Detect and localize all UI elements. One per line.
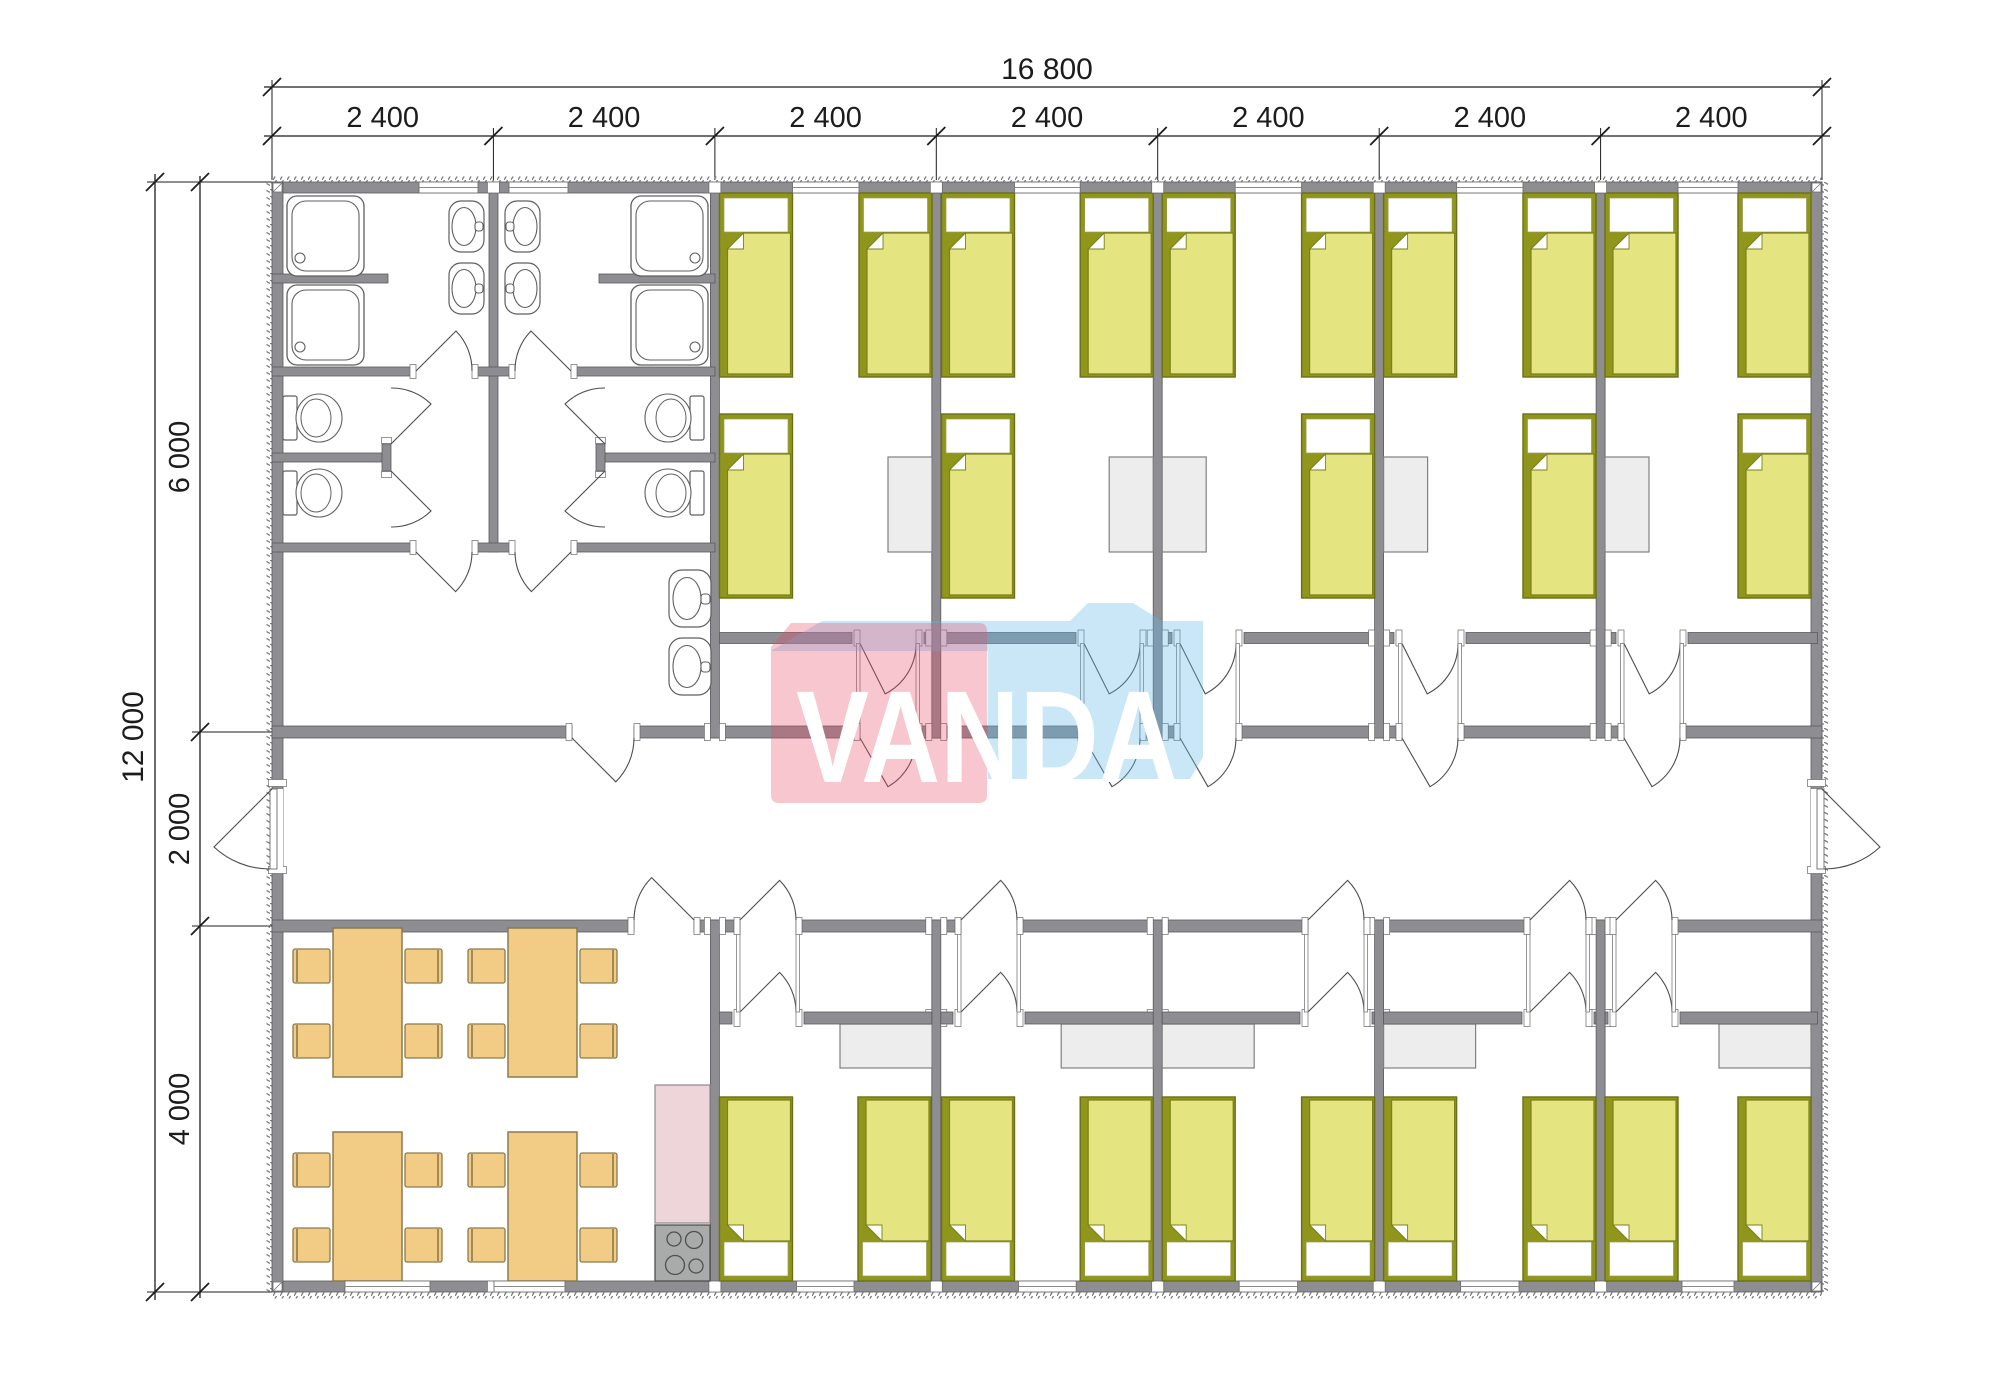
svg-text:12 000: 12 000 bbox=[117, 691, 150, 783]
svg-text:2 000: 2 000 bbox=[164, 793, 196, 866]
svg-text:16 800: 16 800 bbox=[1001, 53, 1093, 86]
svg-text:2 400: 2 400 bbox=[1454, 102, 1527, 134]
svg-text:4 000: 4 000 bbox=[164, 1073, 196, 1146]
svg-text:2 400: 2 400 bbox=[568, 102, 641, 134]
svg-text:2 400: 2 400 bbox=[789, 102, 862, 134]
svg-text:2 400: 2 400 bbox=[346, 102, 419, 134]
svg-text:2 400: 2 400 bbox=[1011, 102, 1084, 134]
svg-text:6 000: 6 000 bbox=[164, 421, 196, 494]
svg-text:2 400: 2 400 bbox=[1232, 102, 1305, 134]
svg-text:2 400: 2 400 bbox=[1675, 102, 1748, 134]
svg-text:VANDA: VANDA bbox=[796, 663, 1178, 810]
